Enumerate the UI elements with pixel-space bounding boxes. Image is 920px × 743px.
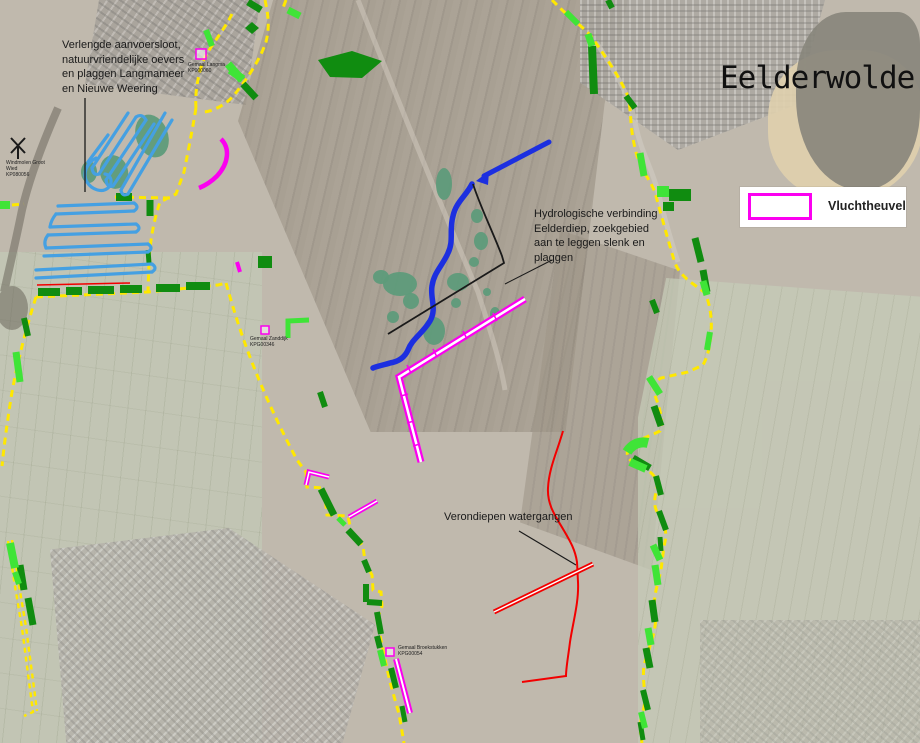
annotation-verondiepen-watergangen: Verondiepen watergangen (444, 510, 644, 525)
legend-label: Vluchtheuvel (828, 199, 906, 213)
light-blue-ditch-lines (36, 113, 172, 278)
label-gemaal-zanddijk: Gemaal Zanddijk KPG00346 (250, 336, 320, 348)
windmill-icon (11, 138, 25, 159)
bright-green-segments (0, 10, 710, 728)
flow-arrow-icon (476, 171, 489, 185)
map-overlay (0, 0, 920, 743)
nature-patches (81, 110, 500, 345)
magenta-features (196, 49, 525, 713)
label-windmolen: Windmolen Groot Wied KP080056 (6, 160, 52, 178)
gemaal-marker-square (261, 326, 269, 334)
vluchtheuvel-swatch (748, 193, 812, 220)
annotation-hydrologische-verbinding: Hydrologische verbinding Eelderdiep, zoe… (534, 207, 684, 265)
label-code: KPG00346 (250, 342, 320, 348)
label-code: KPG00054 (398, 651, 458, 657)
yellow-boundary-lines (0, 0, 711, 743)
label-code: KP000060 (188, 68, 240, 74)
legend: Vluchtheuvel (740, 187, 906, 227)
label-gemaal-langma: Gemaal Langma KP000060 (188, 62, 240, 74)
label-gemaal-broekstukken: Gemaal Broekstukken KPG00054 (398, 645, 458, 657)
dark-green-segments (20, 0, 707, 740)
map-title: Eelderwolde (720, 60, 914, 96)
map-canvas: Verlengde aanvoersloot, natuurvriendelij… (0, 0, 920, 743)
label-code: KP080056 (6, 172, 52, 178)
gemaal-marker-square (386, 648, 394, 656)
label-text: Windmolen Groot Wied (6, 160, 45, 172)
